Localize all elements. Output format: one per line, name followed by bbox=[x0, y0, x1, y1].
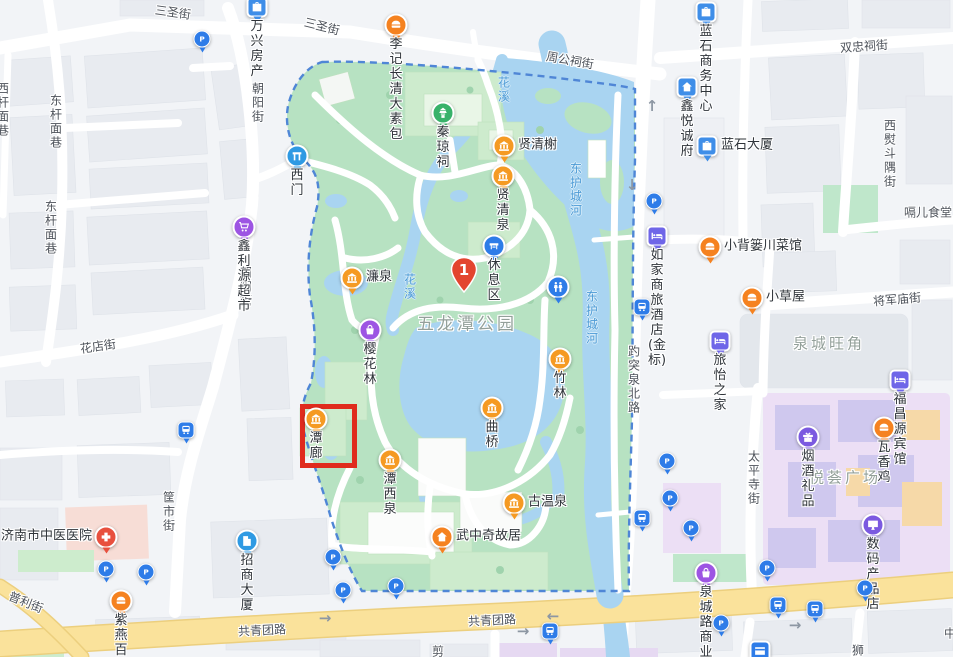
svg-text:1: 1 bbox=[459, 261, 469, 279]
marker-layer: 1 bbox=[0, 0, 953, 657]
selected-result-marker[interactable]: 1 bbox=[448, 256, 480, 298]
map-canvas[interactable]: 三圣街三圣街周公祠街双忠祠街西熨斗隅街朝阳街朝阳街东杆面巷东杆面巷西杆面巷花店街… bbox=[0, 0, 953, 657]
